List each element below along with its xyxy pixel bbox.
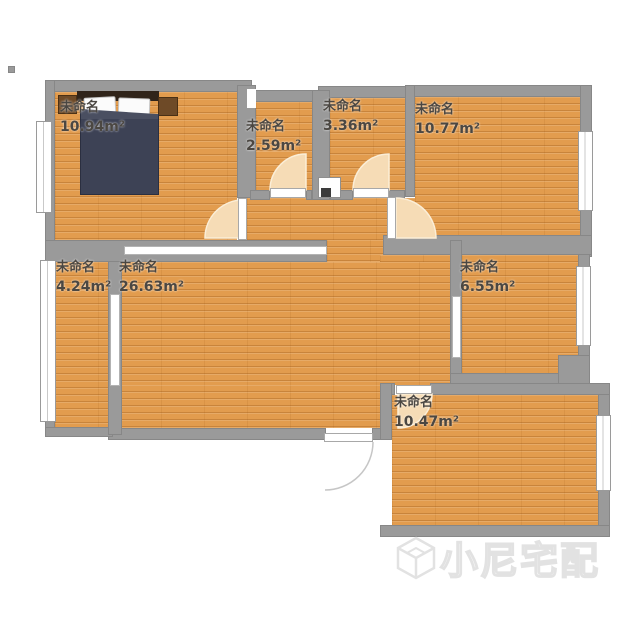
wall-small1-bottom-right [306, 190, 312, 200]
watermark: 小尼宅配 [396, 530, 600, 585]
entry-door-arc [325, 442, 373, 490]
room-name: 未命名 [119, 261, 184, 276]
room-name: 未命名 [415, 103, 480, 118]
room-label-left-narrow: 未命名 4.24m² [56, 261, 111, 295]
wall-stub [8, 66, 15, 73]
room-name: 未命名 [56, 261, 111, 276]
floorplan-canvas: 未命名 10.94m² 未命名 2.59m² 未命名 3.36m² 未命名 10… [0, 0, 640, 640]
window-top-right [578, 131, 593, 211]
wall-bottom-living-left [108, 428, 326, 440]
door-leaf-small-1 [270, 188, 306, 198]
watermark-brand-text: 小尼宅配 [440, 530, 600, 585]
room-name: 未命名 [394, 396, 459, 411]
room-label-living: 未命名 26.63m² [119, 261, 184, 295]
door-leaf-top-right [387, 197, 396, 239]
wall-band-right [383, 235, 592, 255]
wall-top-right-room-left [405, 85, 415, 197]
entry-door-leaf [324, 433, 373, 442]
room-label-bedroom: 未命名 10.94m² [60, 101, 125, 135]
room-area: 2.59m² [246, 138, 301, 154]
wall-bottomroom-left [380, 383, 392, 440]
wall-bottom-left-narrow [45, 427, 113, 437]
wall-top-small-2 [318, 86, 410, 98]
partition-opening-left [110, 294, 120, 386]
hallway-floor-connector[interactable] [327, 240, 383, 264]
door-leaf-bottom-right [396, 385, 432, 394]
window-bedroom-left [36, 121, 52, 213]
nightstand-right[interactable] [158, 97, 178, 116]
door-leaf-small-2 [353, 188, 389, 198]
room-area: 26.63m² [119, 279, 184, 295]
room-label-right: 未命名 6.55m² [460, 261, 515, 295]
room-area: 10.94m² [60, 119, 125, 135]
wall-niche [247, 89, 256, 108]
wall-right-room-corner [558, 355, 590, 385]
partition-opening-right [452, 296, 461, 358]
room-name: 未命名 [323, 100, 378, 115]
room-area: 3.36m² [323, 118, 378, 134]
window-bottom-right [596, 415, 611, 491]
room-area: 6.55m² [460, 279, 515, 295]
wall-bottomroom-top-right [430, 383, 610, 395]
room-label-bottom-right: 未命名 10.47m² [394, 396, 459, 430]
wall-fixture-mark [321, 188, 331, 197]
room-area: 10.47m² [394, 414, 459, 430]
room-label-top-right: 未命名 10.77m² [415, 103, 480, 137]
room-label-small-2: 未命名 3.36m² [323, 100, 378, 134]
room-area: 10.77m² [415, 121, 480, 137]
room-name: 未命名 [60, 101, 125, 116]
wall-small1-bottom-left [250, 190, 270, 200]
wall-top-right [405, 85, 592, 97]
room-floor-living-lower[interactable] [118, 385, 380, 428]
room-label-small-1: 未命名 2.59m² [246, 120, 301, 154]
room-area: 4.24m² [56, 279, 111, 295]
window-right-room [576, 266, 591, 346]
partition-opening-middle [124, 246, 327, 255]
window-left-narrow [40, 260, 56, 422]
room-name: 未命名 [246, 120, 301, 135]
cube-logo-icon [396, 536, 436, 580]
room-name: 未命名 [460, 261, 515, 276]
door-leaf-bedroom [238, 198, 247, 240]
